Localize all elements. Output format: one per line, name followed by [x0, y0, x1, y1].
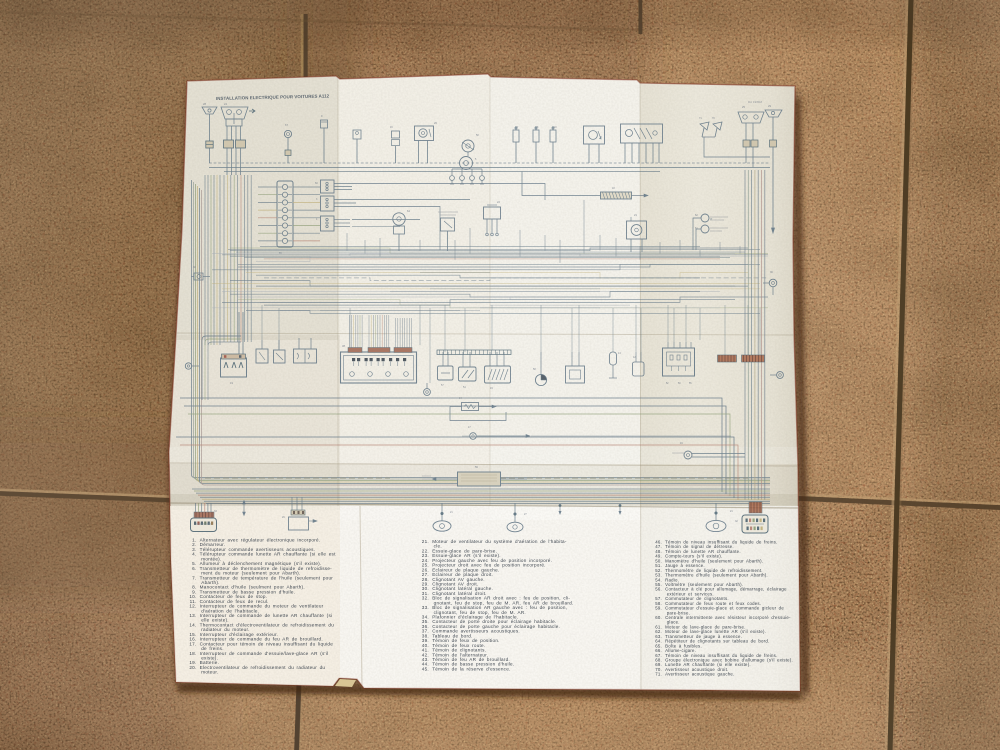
svg-text:DA 19/80Z: DA 19/80Z: [748, 100, 762, 104]
svg-text:P: P: [711, 217, 713, 221]
